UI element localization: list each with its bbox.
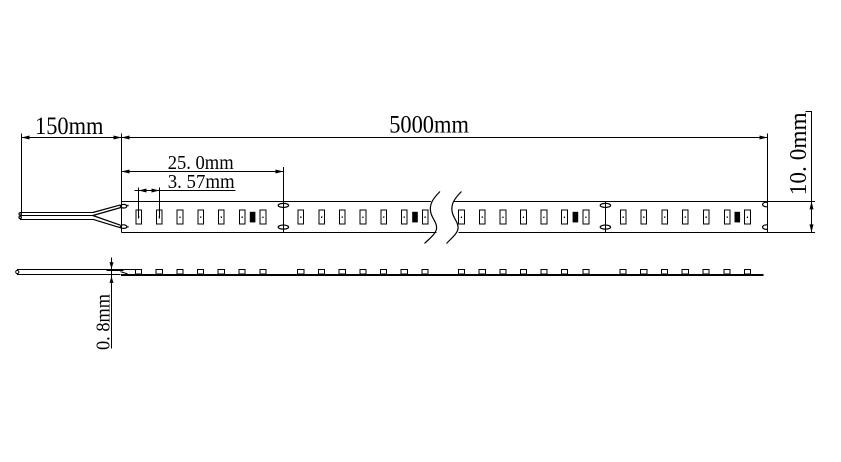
svg-text:150mm: 150mm [35, 113, 104, 140]
svg-text:10. 0mm: 10. 0mm [786, 112, 812, 195]
svg-text:0. 8mm: 0. 8mm [92, 294, 114, 350]
svg-text:3. 57mm: 3. 57mm [168, 171, 235, 193]
svg-text:5000mm: 5000mm [389, 112, 469, 139]
